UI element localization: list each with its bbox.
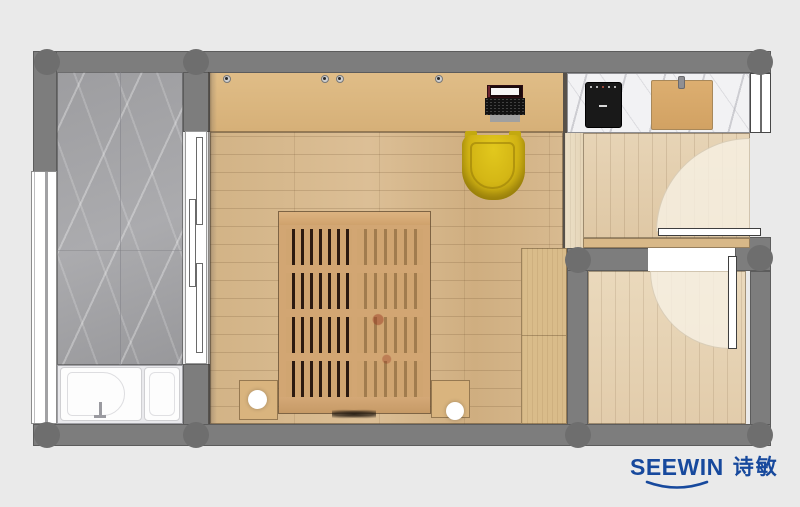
brand-cjk-name: 诗敏 bbox=[733, 457, 779, 478]
laptop-screen bbox=[487, 85, 523, 98]
cabinet-knob bbox=[223, 75, 231, 83]
sliding-door-panel bbox=[189, 199, 196, 287]
bedside-lamp-right bbox=[446, 402, 464, 420]
side-wardrobe bbox=[521, 248, 567, 424]
entry-threshold bbox=[583, 238, 750, 248]
cabinet-knob bbox=[321, 75, 329, 83]
column bbox=[747, 422, 773, 448]
floor-plan: SEEWIN 诗敏 bbox=[0, 0, 800, 507]
bed-headboard bbox=[279, 212, 430, 225]
laptop-trackpad bbox=[490, 115, 520, 122]
bathtub bbox=[144, 367, 180, 421]
shower-tub-rim bbox=[67, 372, 125, 416]
brand-wordmark-block: SEEWIN bbox=[630, 456, 724, 491]
column bbox=[183, 49, 209, 75]
cooktop-control-dot bbox=[602, 86, 604, 88]
room-door-leaf bbox=[728, 256, 737, 349]
wall-top bbox=[33, 51, 771, 73]
cooktop bbox=[585, 82, 622, 128]
wall-hall-left bbox=[567, 248, 588, 425]
sliding-door-panel bbox=[196, 263, 203, 353]
chair-seat-line bbox=[470, 142, 515, 189]
faucet-handle-icon bbox=[94, 415, 106, 418]
knob-dot bbox=[437, 77, 440, 80]
column bbox=[34, 49, 60, 75]
slippers-shadow bbox=[332, 408, 376, 420]
balcony-marble-floor bbox=[57, 72, 183, 365]
marble-seam-horizontal bbox=[57, 250, 183, 251]
bathtub-rim bbox=[149, 372, 175, 416]
brand-logo: SEEWIN 诗敏 bbox=[630, 456, 779, 491]
side-wardrobe-seam bbox=[522, 335, 566, 336]
chair-body bbox=[462, 135, 525, 200]
wall-divider-upper bbox=[183, 72, 210, 132]
knob-dot bbox=[338, 77, 341, 80]
cabinet-knob bbox=[336, 75, 344, 83]
sliding-door-track bbox=[185, 131, 207, 364]
entry-side-cabinet bbox=[563, 133, 583, 248]
desk-chair bbox=[462, 131, 525, 200]
brand-wordmark: SEEWIN bbox=[630, 456, 724, 479]
entry-door-leaf bbox=[658, 228, 761, 236]
bed-slats-right bbox=[357, 225, 423, 397]
room-doorway bbox=[648, 248, 735, 271]
brand-swoosh-icon bbox=[643, 480, 711, 491]
window-left bbox=[31, 171, 57, 424]
cutting-board-handle bbox=[678, 76, 685, 89]
marble-seam-vertical bbox=[120, 72, 121, 365]
window-left-mullion bbox=[45, 172, 48, 423]
laptop-screen-panel bbox=[491, 88, 519, 95]
cooktop-control-dot bbox=[590, 86, 592, 88]
cooktop-control-dot bbox=[608, 86, 610, 88]
window-right bbox=[750, 73, 771, 133]
sliding-door-panel bbox=[196, 137, 203, 225]
column bbox=[747, 245, 773, 271]
column bbox=[565, 247, 591, 273]
bath-zone bbox=[57, 365, 183, 424]
cooktop-control-dot bbox=[596, 86, 598, 88]
double-bed bbox=[279, 212, 430, 413]
window-right-mullion bbox=[760, 74, 762, 132]
window-left-frame-line bbox=[34, 172, 35, 423]
column bbox=[565, 422, 591, 448]
wall-divider-lower bbox=[183, 364, 210, 425]
shower-tub bbox=[60, 367, 142, 421]
bed-slats-left bbox=[286, 225, 352, 397]
laptop bbox=[485, 85, 525, 122]
cabinet-knob bbox=[435, 75, 443, 83]
wall-bottom bbox=[33, 424, 771, 446]
cooktop-control-dot bbox=[614, 86, 616, 88]
knob-dot bbox=[225, 77, 228, 80]
cooktop-display bbox=[599, 105, 607, 107]
wall-right-lower bbox=[750, 271, 771, 425]
column bbox=[183, 422, 209, 448]
column bbox=[34, 422, 60, 448]
knob-dot bbox=[323, 77, 326, 80]
bedroom-edge-shadow bbox=[208, 72, 217, 424]
laptop-keyboard bbox=[485, 98, 525, 115]
column bbox=[747, 49, 773, 75]
bedside-lamp-left bbox=[248, 390, 267, 409]
